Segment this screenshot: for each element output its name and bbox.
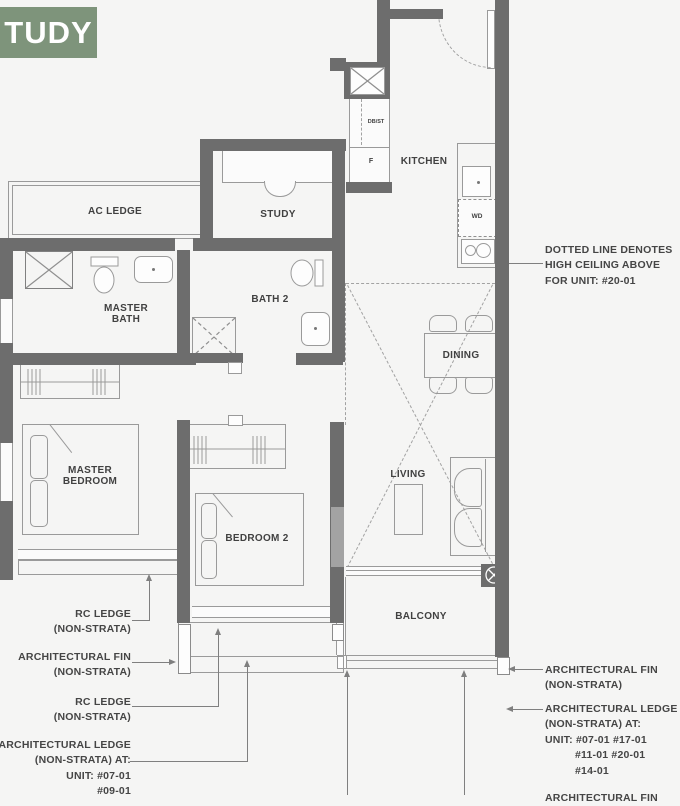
- arrow-up: [344, 670, 350, 677]
- high-ceiling-dashed-line: [345, 283, 346, 425]
- note-arch-fin-right: ARCHITECTURAL FIN (NON-STRATA): [545, 663, 658, 694]
- arrow-up: [244, 660, 250, 667]
- dining-chair: [429, 315, 457, 332]
- leader-line: [511, 709, 543, 710]
- bedroom2-window: [192, 606, 331, 618]
- arrow-up: [461, 670, 467, 677]
- wall-segment: [200, 139, 213, 251]
- rc-ledge-strip-master: [18, 560, 180, 575]
- db-st-cabinet: [349, 97, 390, 184]
- room-label-ac-ledge: AC LEDGE: [88, 206, 142, 217]
- architectural-fin: [332, 624, 344, 641]
- hob-burner: [476, 243, 491, 258]
- leader-line: [132, 662, 169, 663]
- architectural-fin: [178, 624, 191, 674]
- study-desk: [222, 150, 333, 183]
- wall-segment: [296, 353, 343, 365]
- room-label-kitchen: KITCHEN: [401, 156, 448, 167]
- dining-chair: [429, 377, 457, 394]
- shaft-inner: [350, 67, 385, 95]
- db-st-label: DB/ST: [368, 119, 385, 125]
- arrow-right: [169, 659, 176, 665]
- arrow-up: [215, 628, 221, 635]
- wall-segment: [177, 250, 190, 362]
- note-high-ceiling: DOTTED LINE DENOTES HIGH CEILING ABOVE F…: [545, 243, 672, 289]
- unit-type-badge: TUDY: [0, 7, 97, 58]
- washer-dryer-label: WD: [472, 213, 483, 220]
- note-arch-fin-left: ARCHITECTURAL FIN (NON-STRATA): [18, 650, 131, 681]
- leader-line: [347, 676, 348, 795]
- leader-line: [464, 676, 465, 795]
- leader-line: [149, 580, 150, 621]
- master-shower: [25, 251, 73, 289]
- sofa-cushion: [454, 508, 482, 547]
- note-rc-ledge-top: RC LEDGE (NON-STRATA): [54, 607, 131, 638]
- room-label-study: STUDY: [260, 209, 295, 220]
- wall-segment: [495, 0, 509, 657]
- leader-line: [130, 761, 247, 762]
- high-ceiling-dashed-line: [346, 283, 495, 284]
- wall-segment: [346, 182, 392, 193]
- master-wardrobe: [20, 364, 120, 399]
- leader-line: [132, 706, 218, 707]
- room-label-bedroom2: BEDROOM 2: [225, 533, 288, 544]
- balcony-railing-line: [337, 660, 505, 661]
- bath2-shower: [192, 317, 236, 357]
- sofa-back: [485, 459, 486, 552]
- room-label-master-bedroom: MASTERBEDROOM: [63, 465, 117, 487]
- arrow-left: [508, 666, 515, 672]
- wall-column-light: [331, 507, 344, 567]
- door-glyph: [228, 362, 242, 374]
- bedroom2-wardrobe: [187, 424, 286, 469]
- note-arch-fin-bottom-cut: ARCHITECTURAL FIN: [545, 791, 658, 806]
- balcony-sliding-door-track: [346, 570, 483, 571]
- master-toilet: [90, 256, 120, 296]
- arch-ledge-strip-bedroom2: [178, 656, 344, 673]
- room-label-dining: DINING: [443, 350, 480, 361]
- dining-chair: [465, 377, 493, 394]
- wall-segment: [0, 238, 175, 251]
- rc-ledge-strip-bedroom2: [178, 622, 344, 657]
- hob-burner: [465, 245, 476, 256]
- wall-segment: [177, 420, 190, 623]
- entry-door-swing-arc: [438, 12, 491, 68]
- study-chair: [264, 181, 296, 197]
- pillow: [201, 540, 217, 579]
- cabinet-divider: [349, 147, 389, 148]
- arrow-up: [146, 574, 152, 581]
- fridge-label: F: [369, 158, 373, 165]
- arrow-left: [506, 706, 513, 712]
- wall-segment: [0, 238, 13, 580]
- dining-chair: [465, 315, 493, 332]
- room-label-master-bath: MASTERBATH: [104, 303, 148, 325]
- leader-line: [509, 263, 543, 264]
- pillow: [201, 503, 217, 539]
- wall-segment: [0, 353, 196, 365]
- sofa-cushion: [454, 468, 482, 507]
- master-bedroom-side-window: [0, 443, 13, 501]
- wall-segment: [193, 238, 343, 251]
- wardrobe-tab: [228, 415, 243, 426]
- room-label-bath2: BATH 2: [251, 294, 288, 305]
- floor-plan: AC LEDGE DB/ST F WD KITCHEN STUDY MASTER…: [0, 0, 680, 800]
- note-arch-ledge-right: ARCHITECTURAL LEDGE (NON-STRATA) AT: UNI…: [545, 702, 678, 779]
- sink-dot: [477, 181, 480, 184]
- room-label-living: LIVING: [390, 469, 425, 480]
- note-arch-ledge-left: ARCHITECTURAL LEDGE (NON-STRATA) AT: UNI…: [0, 738, 131, 800]
- note-rc-ledge-bottom: RC LEDGE (NON-STRATA): [54, 695, 131, 726]
- wall-segment: [377, 9, 443, 19]
- leader-line: [247, 666, 248, 762]
- leader-line: [132, 620, 149, 621]
- master-bath-window: [0, 299, 13, 343]
- balcony-railing: [337, 655, 507, 669]
- sink-dot: [314, 327, 317, 330]
- db-dashed-divider: [361, 99, 362, 145]
- leader-line: [513, 669, 543, 670]
- coffee-table: [394, 484, 423, 535]
- master-bedroom-window: [18, 549, 178, 560]
- pillow: [30, 435, 48, 479]
- room-label-balcony: BALCONY: [395, 611, 447, 622]
- bath2-toilet: [290, 258, 324, 288]
- wall-segment: [200, 139, 346, 151]
- leader-line: [218, 634, 219, 707]
- sink-dot: [152, 268, 155, 271]
- balcony-sliding-door: [346, 566, 483, 576]
- pillow: [30, 480, 48, 527]
- unit-type-badge-label: TUDY: [4, 15, 92, 51]
